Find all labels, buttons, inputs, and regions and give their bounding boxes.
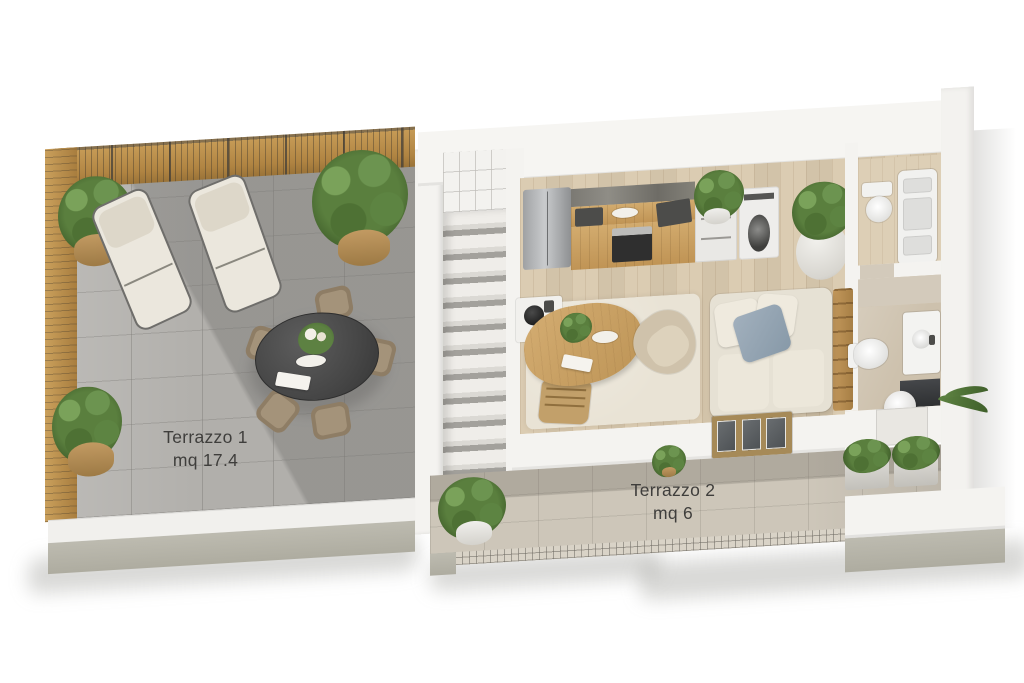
washing-machine (739, 186, 779, 259)
terrace1-name: Terrazzo 1 (118, 426, 293, 449)
stairs-landing (443, 149, 507, 213)
sofa-seat-left (718, 352, 769, 412)
floorplan-scene (0, 0, 1024, 683)
building-right-wall (941, 86, 974, 532)
terrace2-name: Terrazzo 2 (588, 479, 758, 502)
shower-panel-bottom (903, 235, 933, 256)
terrace1-area: mq 17.4 (118, 449, 293, 472)
counter-appliance (575, 207, 603, 227)
faucet (929, 335, 935, 345)
shower-column (898, 169, 937, 265)
floorplan-render: Terrazzo 1 mq 17.4 Terrazzo 2 mq 6 (0, 0, 1024, 683)
sliding-door (712, 412, 792, 459)
terrace2-label: Terrazzo 2 mq 6 (588, 479, 758, 525)
right-wall-shadow (974, 128, 1016, 531)
staircase (443, 209, 507, 479)
shower-panel-mid (903, 197, 933, 231)
oven (612, 226, 652, 262)
door-pane-3 (766, 417, 785, 449)
refrigerator (523, 187, 571, 270)
door-pane-1 (717, 420, 736, 452)
terrace2-area: mq 6 (588, 502, 758, 525)
terrace2-base-left (430, 552, 456, 576)
door-pane-2 (742, 418, 761, 450)
terrace1-label: Terrazzo 1 mq 17.4 (118, 426, 293, 472)
sofa-seat-right (773, 349, 824, 409)
shower-panel-top (903, 176, 933, 193)
toilet1-tank (862, 181, 892, 197)
